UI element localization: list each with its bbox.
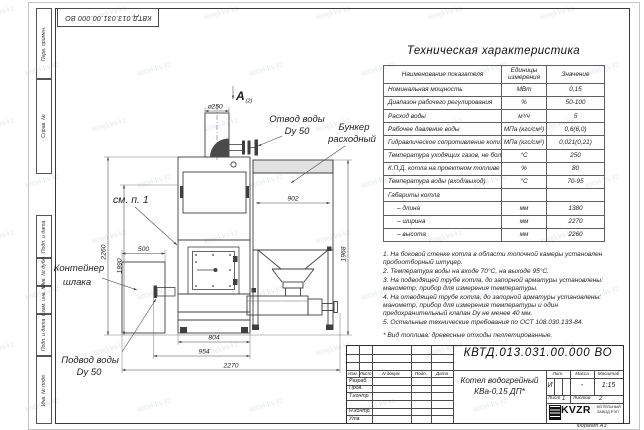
spec-cell: мм: [502, 228, 547, 241]
spec-cell: Температура воды (вход/выход): [384, 176, 502, 189]
label-bunker-2: расходный: [327, 134, 377, 145]
spec-table: Наименование показателя Единицы измерени…: [383, 65, 605, 242]
spec-header-row: Наименование показателя Единицы измерени…: [384, 66, 605, 84]
sidebar-label: Перв. примен.: [41, 27, 47, 61]
spec-row: Температура уходящих газов, не более°С25…: [384, 149, 605, 162]
tb-sheets-label: Листов: [573, 396, 591, 402]
spec-cell: 250: [547, 149, 605, 162]
view-ref: (2): [246, 99, 253, 105]
spec-cell: 2270: [547, 215, 605, 228]
spec-cell: Рабочее давление воды: [384, 123, 502, 136]
spec-row: Расход водым³/ч5: [384, 110, 605, 123]
title-block: КВТД.013.031.00.000 ВО Изм. Лист N докум…: [346, 345, 624, 424]
sidebar-label: Инв. № подл.: [41, 373, 47, 405]
product-name: Котел водогрейный КВа-0,15 ДП*: [453, 375, 546, 397]
spec-cell: 2260: [547, 228, 605, 241]
label-slag-1: Контейнер: [54, 263, 104, 274]
spec-row: Габариты котла: [384, 189, 605, 202]
spec-header-name: Наименование показателя: [384, 66, 502, 84]
label-outlet-1: Отвод воды: [269, 114, 325, 125]
fuel-note: * Вид топлива: древесные отходы пеллетир…: [383, 332, 613, 339]
dim-chimney-diameter: ⌀250: [207, 104, 223, 111]
sidebar-label: Справ. №: [41, 114, 47, 138]
tb-row-utv: Утв.: [349, 416, 371, 423]
spec-cell: 0,6(6,0): [547, 123, 605, 136]
dim-total-width: 2270: [222, 363, 238, 370]
spec-row: Диапазон рабочего регулирования%50-100: [384, 96, 605, 109]
spec-cell: – длина: [384, 202, 502, 215]
spec-row: – высотамм2260: [384, 228, 605, 241]
tb-row-tkontr: Т.контр.: [349, 393, 371, 400]
spec-cell: МПа (кгс/см²): [502, 123, 547, 136]
kvzr-logo-icon: [549, 405, 561, 420]
spec-cell: Температура уходящих газов, не более: [384, 149, 502, 162]
tb-col-podp: Подп.: [411, 371, 431, 377]
title-block-doc-number: КВТД.013.031.00.000 ВО: [453, 347, 623, 368]
spec-cell: мм: [502, 202, 547, 215]
company-line1: КОТЕЛЬНЫЙ: [597, 405, 621, 409]
spec-cell: [502, 189, 547, 202]
sidebar-box-perv-primen: Перв. примен.: [36, 8, 52, 80]
spec-cell: МПа (кгс/см²): [502, 136, 547, 149]
label-see-note: см. п. 1: [113, 194, 149, 206]
drawing-sheet: kotel-kv.kzkotel-kv.kzkotel-kv.kzkotel-k…: [0, 0, 644, 430]
furnace-door: [188, 247, 239, 294]
spec-row: Температура воды (вход/выход)°С70-95: [384, 176, 605, 189]
spec-table-title: Техническая характеристика: [383, 45, 604, 57]
spec-row: Гидравлическое сопротивление котлаМПа (к…: [384, 136, 605, 149]
tb-row-razrab: Разраб.: [349, 378, 371, 385]
spec-cell: 70-95: [547, 176, 605, 189]
sidebar-label: Взам. инв. №: [41, 284, 47, 316]
tb-row-nkontr: Н.контр.: [349, 408, 371, 415]
spec-cell: [547, 189, 605, 202]
dim-inlet-width: 954: [198, 349, 210, 356]
tech-note: 5. Остальные технические требования по О…: [383, 319, 613, 327]
dim-bunker-width: 902: [287, 196, 299, 203]
spec-cell: °С: [502, 149, 547, 162]
tb-mass-label: Масса: [570, 371, 594, 377]
tech-note: 2. Температура воды на входе 70°С, на вы…: [383, 268, 613, 276]
spec-cell: 0,021(0,21): [547, 136, 605, 149]
tech-notes: 1. На боковой стенке котла в области топ…: [383, 251, 613, 328]
product-name-line2: КВа-0,15 ДП*: [474, 387, 525, 396]
spec-cell: мм: [502, 215, 547, 228]
chimney: [205, 105, 229, 161]
top-inverted-stamp: КВТД.013.031.00.000 ВО: [57, 8, 159, 27]
spec-cell: К.П.Д. котла на проектном топливе: [384, 162, 502, 175]
sidebar-label: Подп. и дата: [41, 319, 47, 351]
dim-height-1990: 1990: [117, 258, 124, 273]
product-name-line1: Котел водогрейный: [461, 376, 539, 385]
door-bolts: [195, 254, 231, 287]
spec-cell: 5: [547, 110, 605, 123]
tech-note: 3. На подводящей трубе котла, до запорно…: [383, 277, 613, 293]
spec-cell: 1380: [547, 202, 605, 215]
spec-cell: Диапазон рабочего регулирования: [384, 96, 502, 109]
stamp-doc-number: КВТД.013.031.00.000 ВО: [65, 14, 152, 21]
tb-sheet-value: 1: [562, 396, 570, 403]
tb-sheets-value: 2: [599, 396, 609, 403]
tb-scale-label: Масштаб: [594, 371, 623, 377]
spec-row: Номинальная мощностьМВт0,15: [384, 83, 605, 96]
screw-feeder: [247, 296, 338, 315]
spec-row: К.П.Д. котла на проектном топливе%80: [384, 162, 605, 175]
label-inlet-2: Dy 50: [77, 367, 103, 378]
sidebar-box-podp-data-2: Подп. и дата: [36, 313, 52, 357]
spec-cell: – высота: [384, 228, 502, 241]
spec-cell: Габариты котла: [384, 189, 502, 202]
water-outlet-valve: [229, 140, 258, 156]
sidebar-box-inv-podl: Инв. № подл.: [36, 355, 52, 424]
spec-row: – ширинамм2270: [384, 215, 605, 228]
spec-cell: – ширина: [384, 215, 502, 228]
label-outlet-2: Dy 50: [285, 126, 311, 137]
spec-cell: 0,15: [547, 83, 605, 96]
slag-container: [122, 262, 165, 333]
spec-cell: °С: [502, 176, 547, 189]
tb-mass-value: -: [570, 381, 594, 391]
spec-cell: МВт: [502, 83, 547, 96]
label-bunker-1: Бункер: [338, 122, 369, 133]
dim-slag-width: 500: [138, 246, 150, 253]
spec-cell: Гидравлическое сопротивление котла: [384, 136, 502, 149]
tb-col-list: Лист: [359, 371, 372, 377]
company-line2: ЗАВОД РЭП: [597, 410, 619, 414]
tb-row-prov: Пров.: [349, 385, 371, 392]
label-inlet-1: Подвод воды: [61, 355, 119, 366]
chimney-elbow: [210, 139, 229, 158]
spec-cell: 50-100: [547, 96, 605, 109]
tech-note: 1. На боковой стенке котла в области топ…: [383, 251, 613, 267]
sidebar-box-podp-data-1: Подп. и дата: [36, 215, 52, 259]
spec-cell: Расход воды: [384, 110, 502, 123]
dim-total-height: 2260: [101, 244, 108, 260]
sidebar-label: Подп. и дата: [41, 221, 47, 253]
view-label: А: [235, 89, 245, 103]
spec-cell: 80: [547, 162, 605, 175]
dim-bunker-height: 1968: [341, 246, 348, 261]
spec-header-units: Единицы измерения: [502, 66, 547, 84]
tb-col-data: Дата: [431, 371, 453, 377]
sidebar-box-vzam-inv: Взам. инв. №: [36, 285, 52, 315]
spec-row: – длинамм1380: [384, 202, 605, 215]
label-slag-2: шлака: [63, 277, 91, 288]
format-note: Формат А3: [555, 423, 628, 429]
tb-sheet-label: Лист: [548, 396, 561, 402]
tb-scale-value: 1:15: [594, 381, 623, 391]
tb-lit-value: И: [546, 381, 554, 391]
spec-row: Рабочее давление водыМПа (кгс/см²)0,6(6,…: [384, 123, 605, 136]
spec-cell: Номинальная мощность: [384, 83, 502, 96]
boiler-body: [178, 157, 250, 333]
company-name: КОТЕЛЬНЫЙ ЗАВОД РЭП: [597, 405, 623, 414]
sidebar-box-inv-dubl: Инв. № дубл.: [36, 257, 52, 287]
kvzr-logo-text: KVZR: [561, 404, 597, 416]
tb-col-izm: Изм.: [347, 371, 359, 377]
spec-header-value: Значение: [547, 66, 605, 84]
feed-bunker: [252, 160, 334, 330]
spec-cell: %: [502, 96, 547, 109]
sidebar-box-sprav-n: Справ. №: [36, 78, 52, 174]
water-inlet-stub: [154, 286, 176, 299]
dim-boiler-width: 804: [208, 335, 220, 342]
tb-lit-label: Лит.: [546, 371, 570, 377]
spec-cell: %: [502, 162, 547, 175]
tb-col-ndokum: N докум.: [372, 371, 411, 377]
tech-note: 4. На отводящей трубе котла, до запорной…: [383, 294, 613, 317]
spec-cell: м³/ч: [502, 110, 547, 123]
